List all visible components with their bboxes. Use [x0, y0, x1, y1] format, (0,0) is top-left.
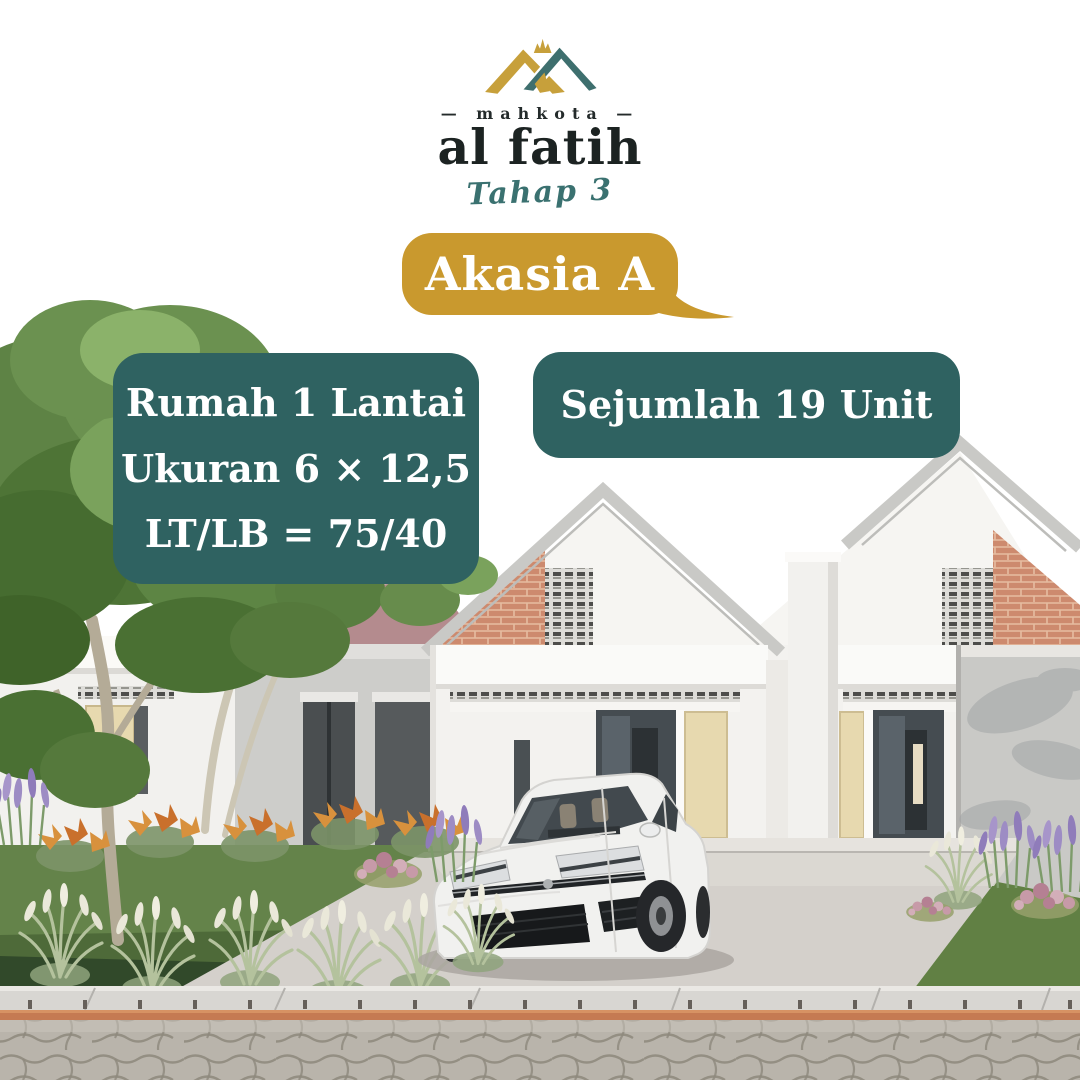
badge-label: Akasia A	[402, 233, 678, 315]
cluster-badge: Akasia A	[402, 233, 742, 328]
logo: — mahkota — al fatih Tahap 3	[0, 38, 1080, 210]
spec-line-area: LT/LB = 75/40	[145, 513, 448, 555]
spec-line-size: Ukuran 6 × 12,5	[121, 448, 471, 490]
spec-card: Rumah 1 Lantai Ukuran 6 × 12,5 LT/LB = 7…	[113, 353, 479, 584]
unit-count-card: Sejumlah 19 Unit	[533, 352, 960, 458]
spec-line-type: Rumah 1 Lantai	[126, 382, 466, 424]
logo-mark-icon	[476, 38, 604, 100]
unit-count-label: Sejumlah 19 Unit	[561, 384, 933, 426]
poster: — mahkota — al fatih Tahap 3 Akasia A Ru…	[0, 0, 1080, 1080]
street	[0, 986, 1080, 1080]
